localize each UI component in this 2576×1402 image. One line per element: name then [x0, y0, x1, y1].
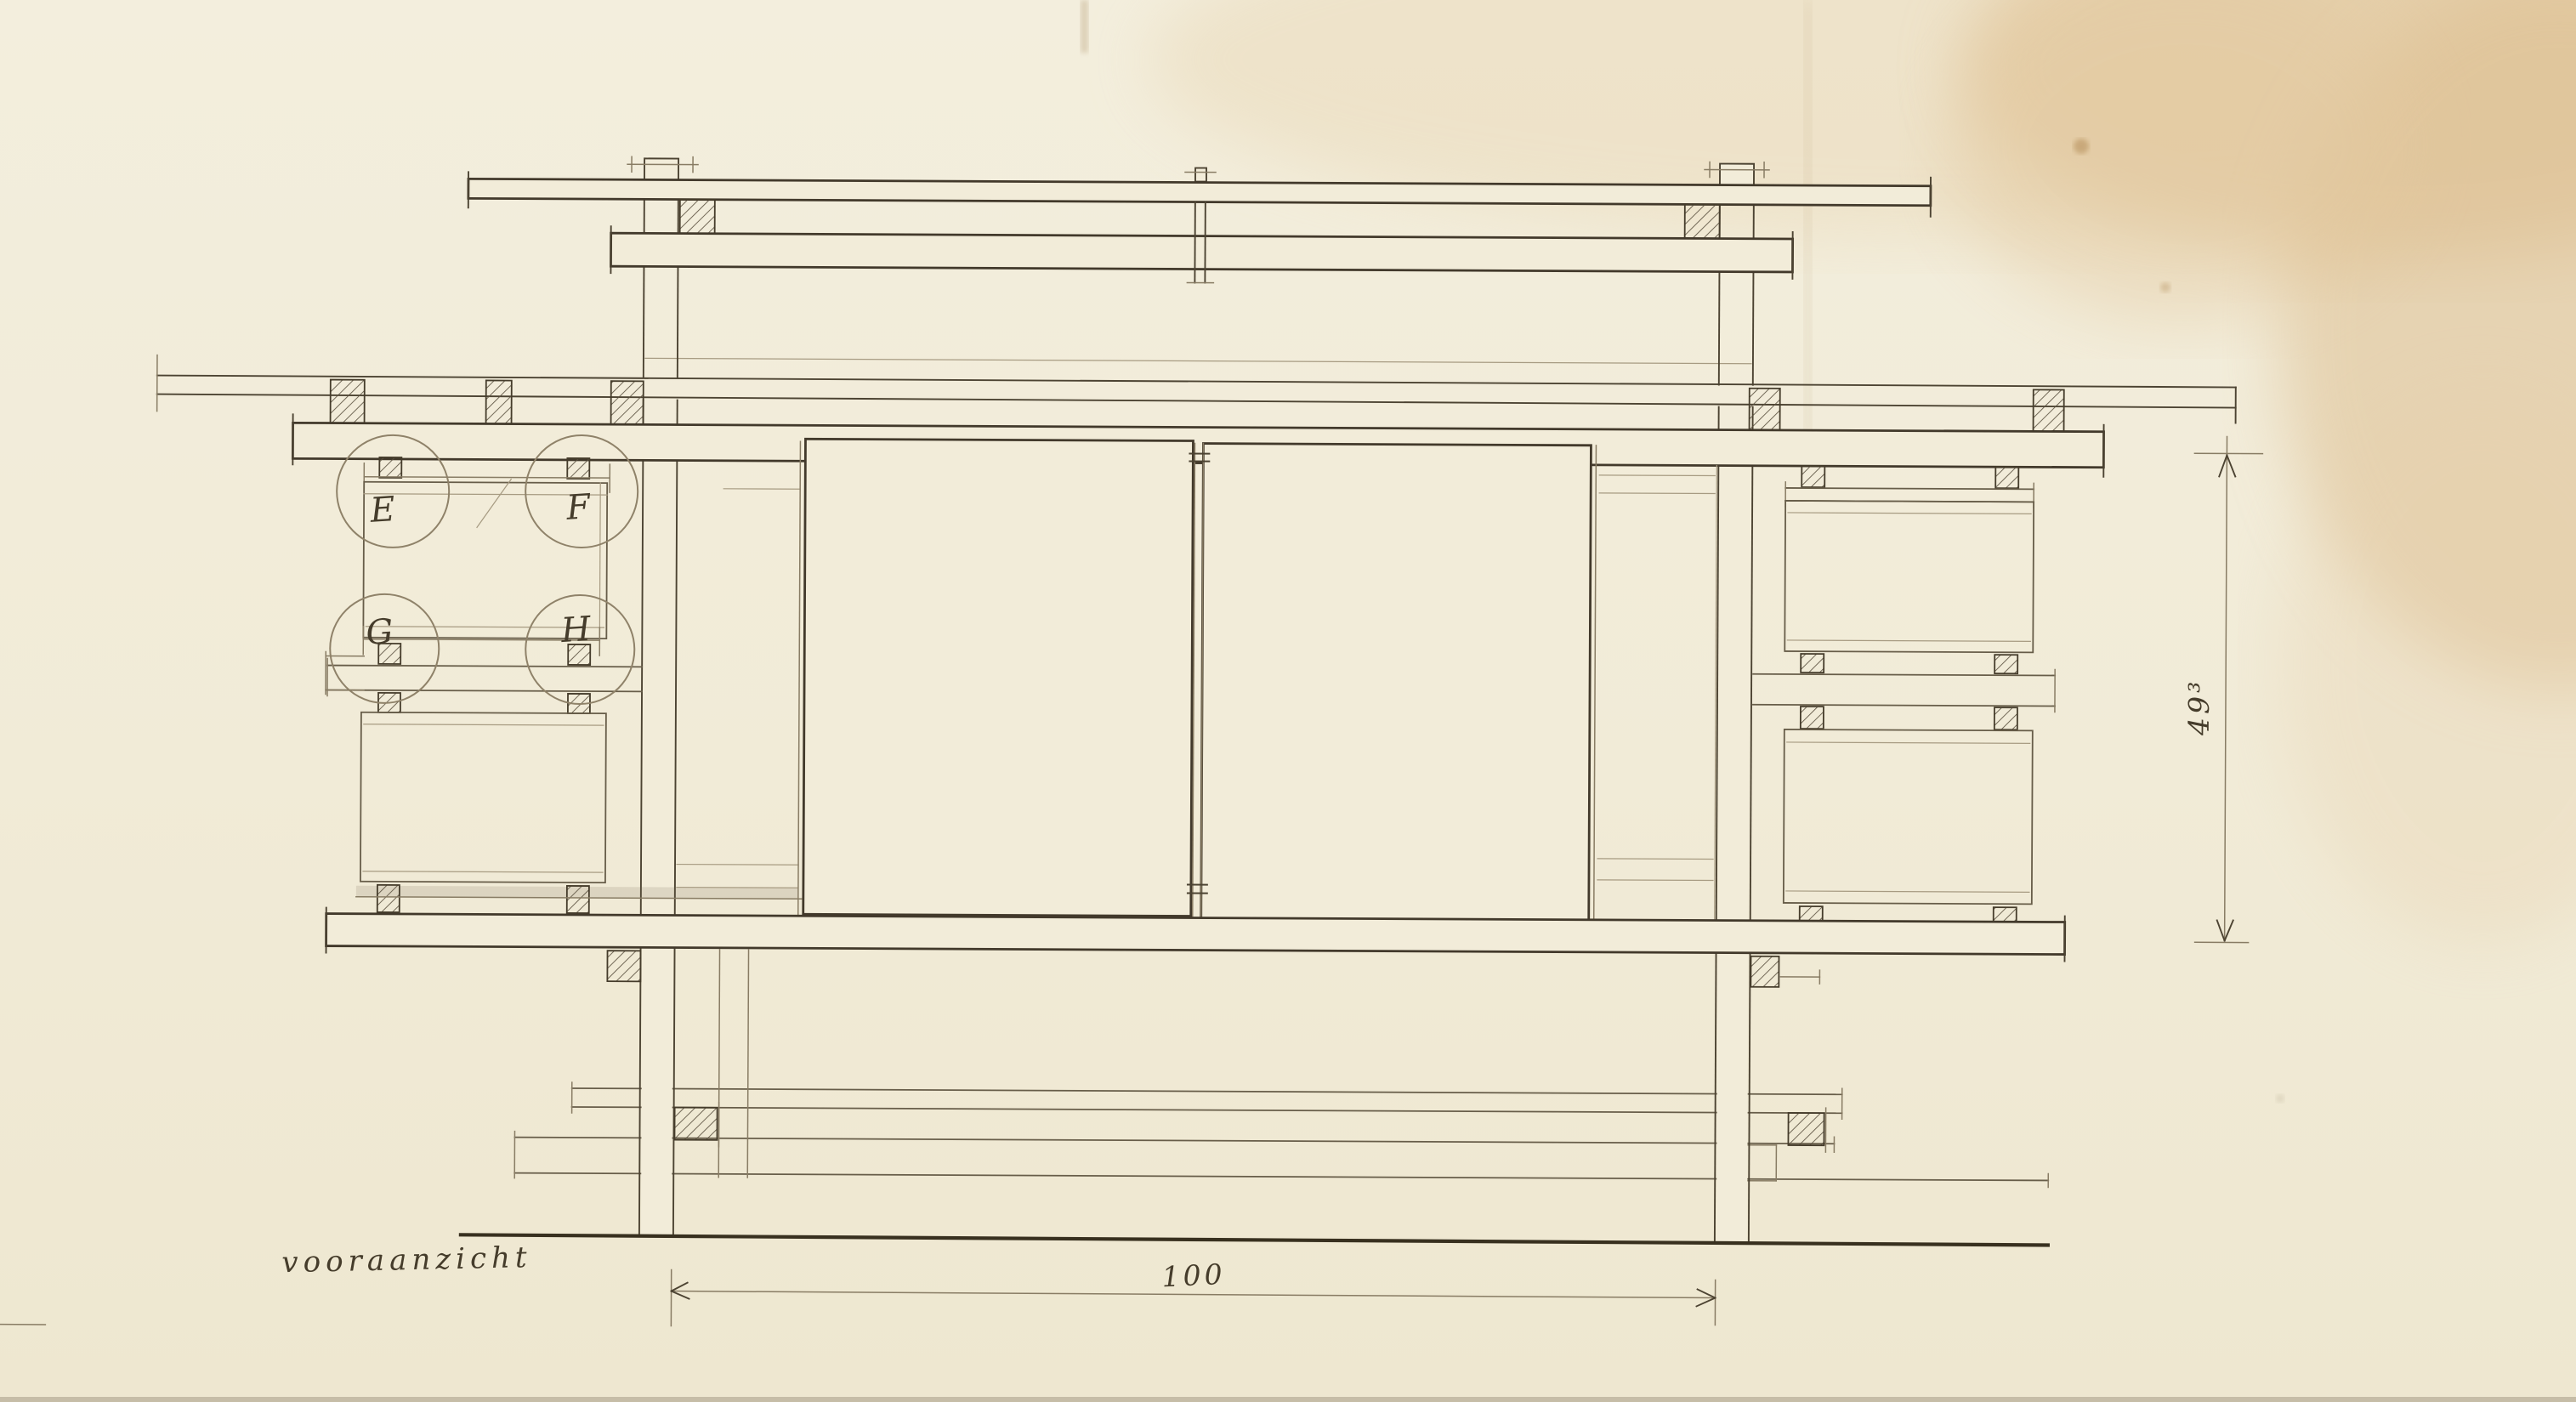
sheet-bottom-edge — [0, 1397, 2576, 1402]
top-peg-right — [1720, 164, 1754, 185]
speck — [2160, 282, 2170, 292]
crease-vertical — [1804, 0, 1812, 442]
detail-label-f: F — [565, 487, 593, 528]
detail-label-e: E — [368, 490, 396, 531]
width-dimension-value: 100 — [1161, 1257, 1227, 1294]
top-peg-middle — [1195, 168, 1206, 182]
slat-section-hatch — [680, 200, 715, 234]
height-dimension-value: 49³ — [2182, 678, 2216, 736]
slat-section-hatch — [1685, 204, 1720, 238]
speck — [2074, 139, 2089, 154]
top-plank-b — [610, 233, 1792, 272]
detail-label-h: H — [559, 610, 593, 650]
speck — [2276, 1094, 2284, 1103]
sideboard-front-elevation-drawing: E F G H 100 49³ vooraanzi — [0, 0, 2576, 1402]
crease-top — [1081, 0, 1088, 53]
top-peg-left — [644, 158, 678, 179]
joint-hatch-f — [567, 458, 589, 479]
left-door-panel — [803, 439, 1194, 916]
view-caption: vooraanzicht — [281, 1240, 532, 1280]
right-door-panel — [1201, 444, 1592, 925]
detail-label-g: G — [365, 612, 394, 653]
joint-hatch-e — [379, 457, 401, 478]
scanned-drawing-sheet: E F G H 100 49³ vooraanzi — [0, 0, 2576, 1402]
